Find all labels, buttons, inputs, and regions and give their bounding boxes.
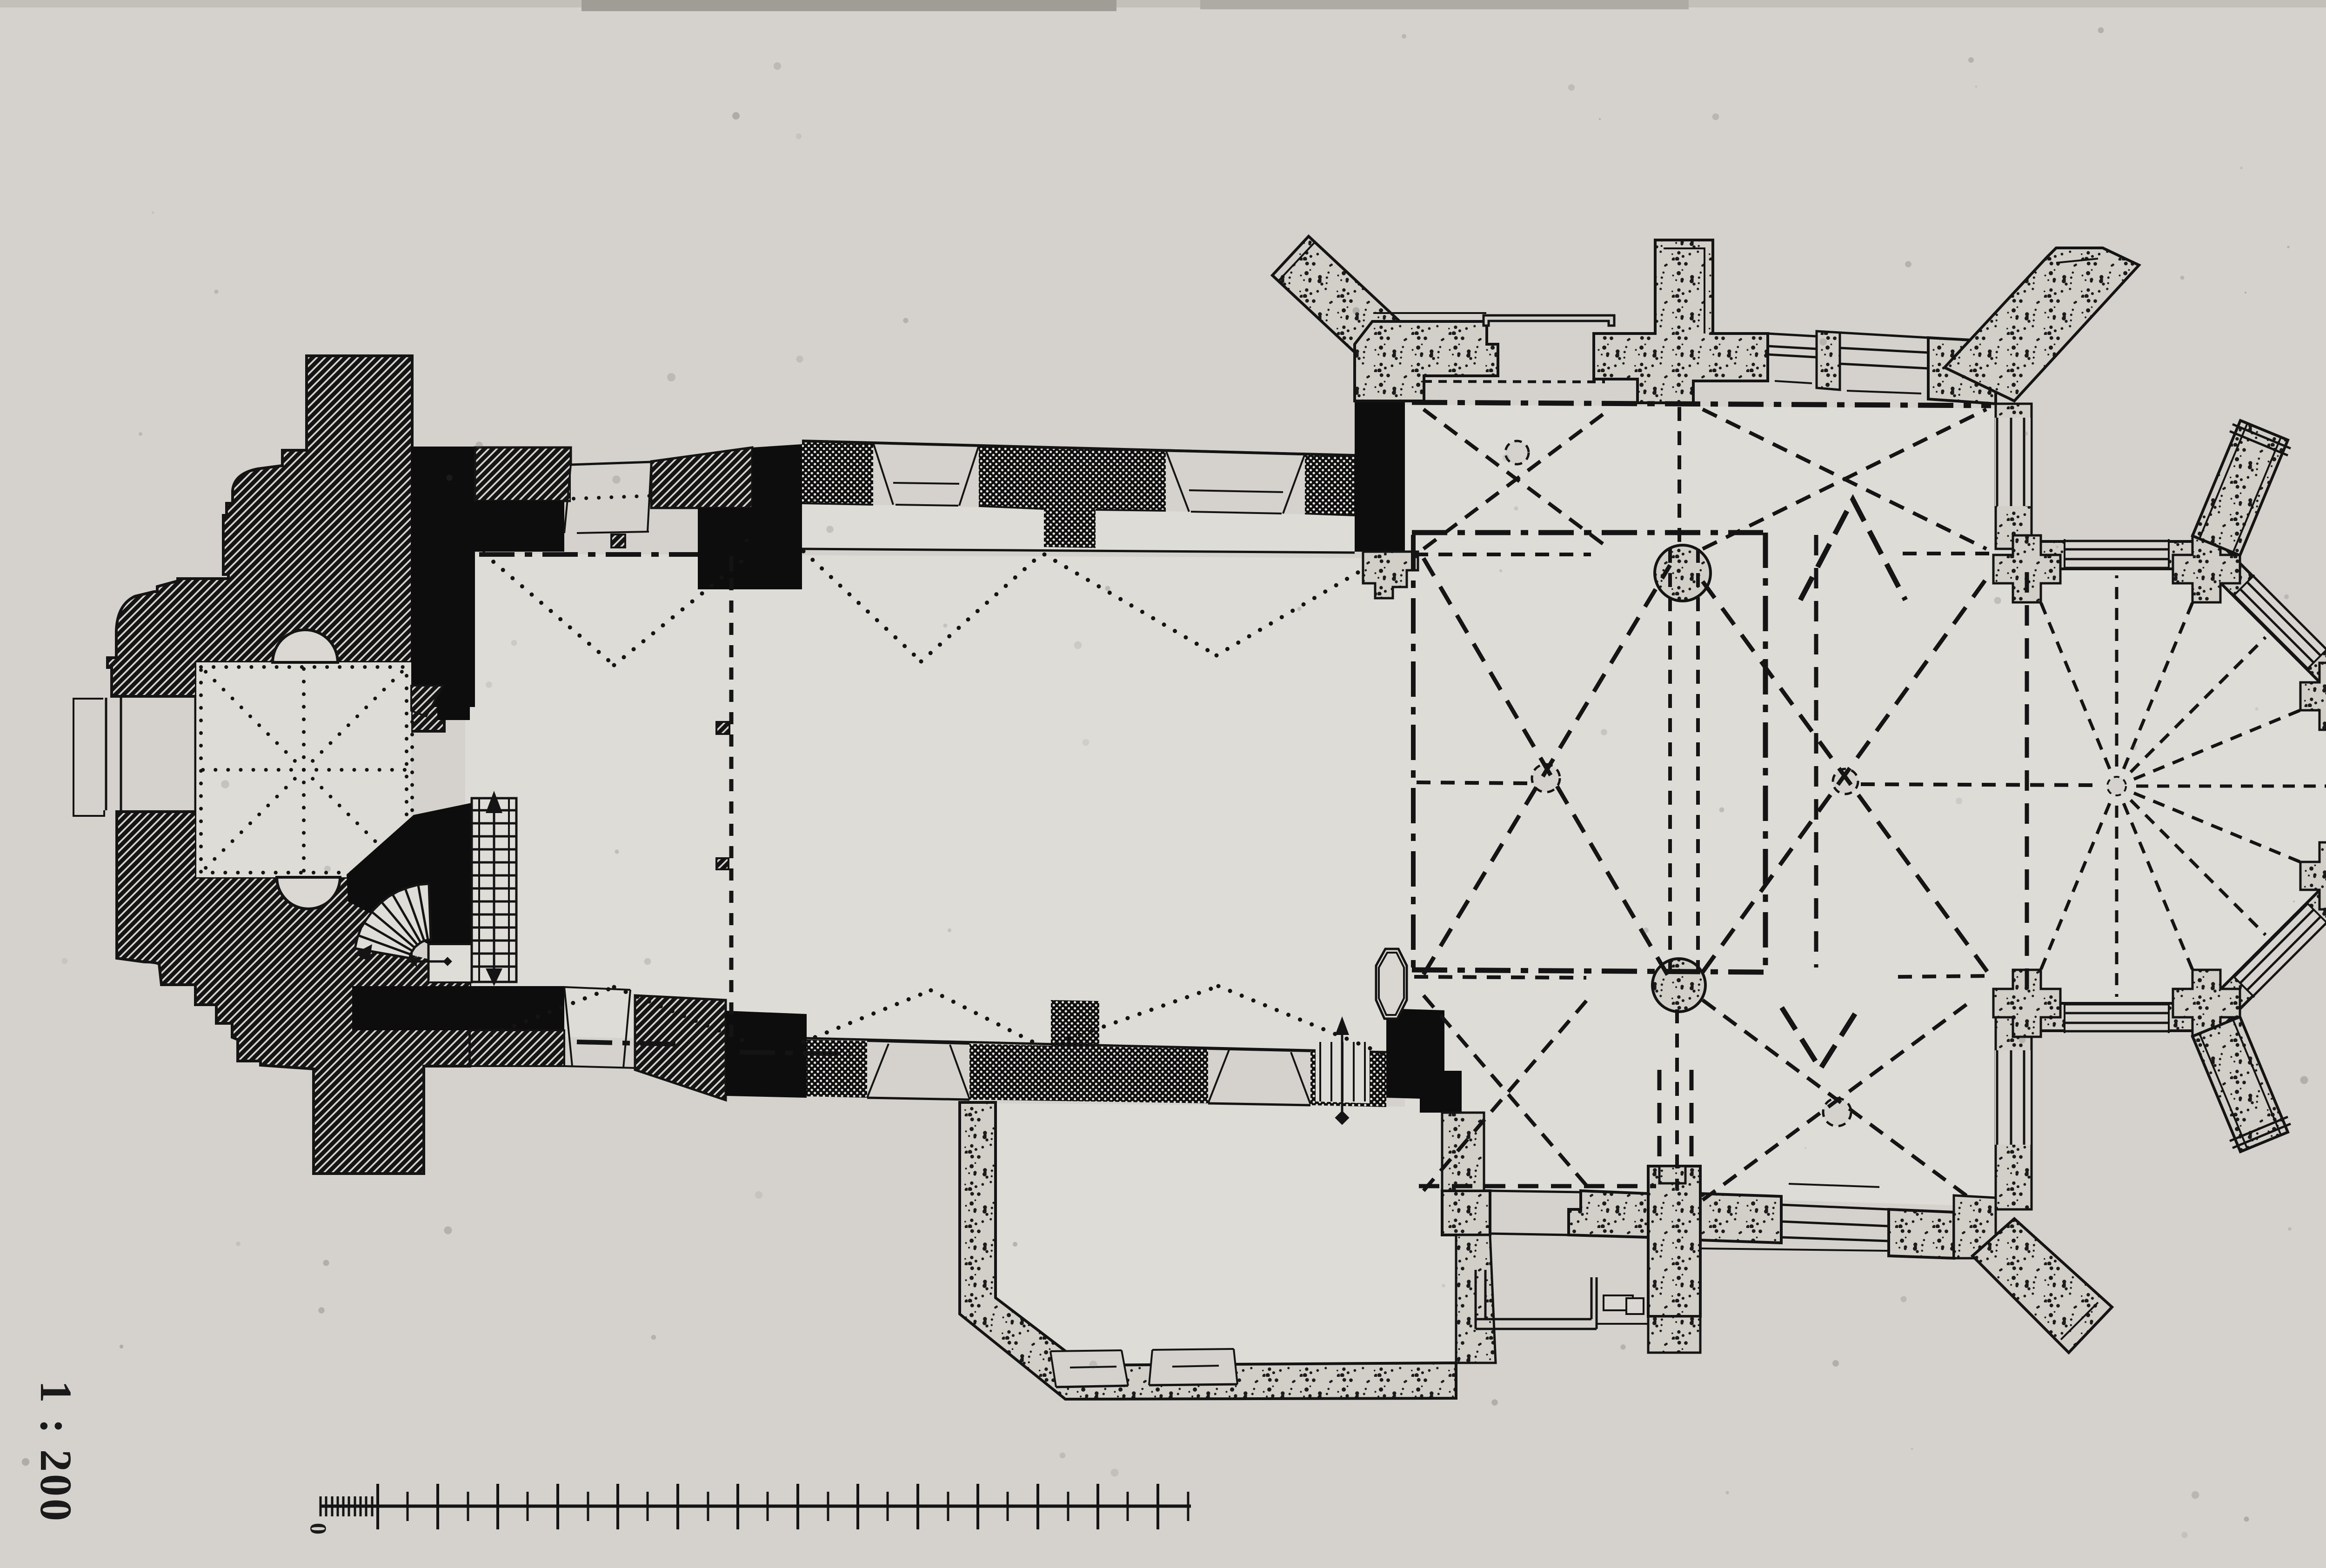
svg-text:1 : 200: 1 : 200 [31,1381,81,1523]
svg-text:0: 0 [306,1523,332,1535]
